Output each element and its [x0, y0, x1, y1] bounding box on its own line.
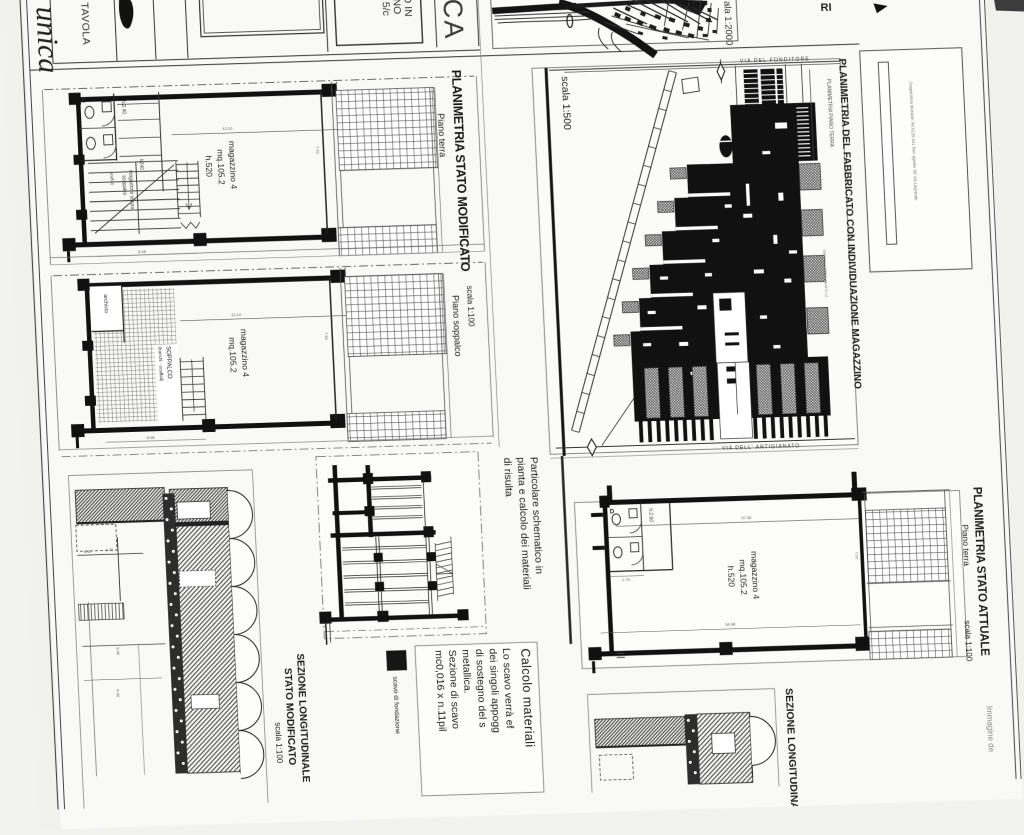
svg-text:mq.105.2: mq.105.2	[227, 337, 239, 373]
svg-text:archivio: archivio	[102, 294, 109, 313]
svg-text:1.74: 1.74	[622, 577, 631, 582]
svg-text:5.95: 5.95	[84, 550, 91, 554]
svg-text:5.08: 5.08	[138, 249, 147, 254]
svg-text:7.62: 7.62	[324, 332, 329, 341]
svg-text:5.08: 5.08	[147, 435, 156, 440]
svg-text:h.520: h.520	[204, 155, 215, 177]
svg-text:unica: unica	[29, 6, 65, 74]
svg-text:3.70: 3.70	[106, 548, 113, 552]
svg-text:5/c: 5/c	[380, 2, 393, 16]
svg-text:mq.105.2: mq.105.2	[215, 149, 227, 185]
svg-text:RI: RI	[820, 2, 832, 14]
svg-text:mq.105.2: mq.105.2	[737, 559, 749, 595]
svg-text:Piano terra: Piano terra	[436, 113, 448, 157]
svg-text:Piano terra: Piano terra	[960, 524, 972, 566]
svg-text:9.40: 9.40	[116, 647, 121, 656]
svg-text:scala 1:500: scala 1:500	[558, 76, 573, 130]
svg-text:4.30: 4.30	[116, 689, 121, 698]
svg-text:scaffali: scaffali	[109, 172, 115, 185]
svg-text:h.2.40: h.2.40	[120, 100, 127, 114]
svg-text:12.10: 12.10	[231, 312, 242, 317]
svg-text:7.67: 7.67	[854, 552, 859, 561]
svg-text:h240: h240	[138, 159, 145, 171]
svg-text:12.10: 12.10	[222, 126, 233, 131]
svg-text:7.62: 7.62	[315, 146, 320, 155]
svg-text:54.96: 54.96	[725, 622, 736, 627]
svg-text:h.2.60: h.2.60	[647, 508, 654, 522]
svg-text:57.30: 57.30	[741, 515, 752, 520]
svg-text:metallica.: metallica.	[460, 649, 474, 694]
svg-text:TAVOLA: TAVOLA	[78, 2, 92, 45]
svg-text:CA: CA	[438, 0, 470, 41]
svg-text:di risulta: di risulta	[501, 457, 515, 497]
svg-text:h.520: h.520	[726, 566, 737, 588]
svg-text:soppalco: soppalco	[120, 175, 127, 195]
svg-text:ala 1:2000: ala 1:2000	[721, 1, 734, 45]
